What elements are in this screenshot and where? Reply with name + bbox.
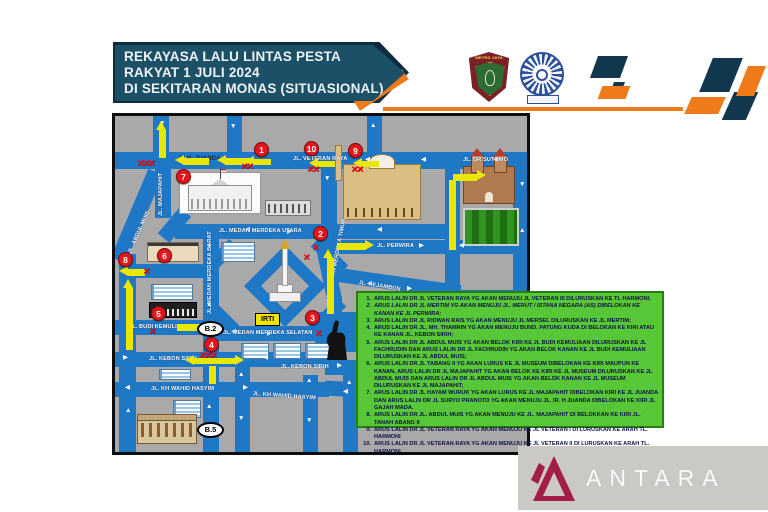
detour-arrow [159,130,166,158]
antara-wordmark: ANTARA [586,465,726,492]
road-arrow-icon [123,355,128,362]
street-label-majapahit: JL. MAJAPAHIT [158,173,164,216]
checkpoint-oval-b2: B.2 [197,321,224,337]
office-building-icon [159,369,191,380]
point-badge-7: 7 [176,169,191,184]
road-arrow-icon [337,363,342,370]
road-segment [227,116,242,152]
legend-item: 8.ARUS LALIN DR JL. ABDUL MUIS YG AKAN M… [361,412,658,427]
point-badge-9: 9 [348,143,363,158]
header-orange-line [383,107,683,111]
monas-obelisk [282,248,288,286]
closure-x-icon [351,164,362,175]
metro-jaya-police-badge-icon: METRO JAYA [468,52,510,102]
street-label-kebon-sirih-east: JL. KEBON SIRIH [281,364,329,370]
legend-item-text: ARUS LALIN DR JL VETERAN RAYA YG AKAN ME… [374,296,658,303]
street-label-wahid-hasyim-west: JL. KH WAHID HASYIM [151,386,214,392]
detour-arrow [209,366,216,384]
legend-item-number: 4. [361,325,371,340]
legend-item: 5.ARUS LALIN DR JL ABDUL MUIS YG AKAN BE… [361,340,658,362]
detour-arrow-head [365,240,374,250]
road-arrow-icon [230,124,236,131]
colonnade-building-icon [265,200,311,216]
legend-item: 7.ARUS LALIN DR JL HAYAM WURUK YG AKAN L… [361,390,658,412]
legend-item-number: 1. [361,296,371,303]
palace-facade [188,185,252,211]
road-segment [175,224,445,239]
deco-orange-shape [598,86,631,99]
legend-item-number: 9. [361,427,371,442]
road-arrow-icon [238,416,244,423]
legend-item: 2.ARUS LALIN DR JL MERTIM YG AKAN MENUJU… [361,303,658,318]
closure-x-icon [137,158,154,169]
legend-item: 6.ARUS LALIN DR JL TABANG II YG AKAN LUR… [361,361,658,390]
legend-item-text: ARUS LALIN DR JL TABANG II YG AKAN LURUS… [374,361,658,390]
legend-item-number: 7. [361,390,371,412]
road-arrow-icon [370,123,376,130]
legend-item: 4.ARUS LALIN DR JL. MH. THAMRIN YG AKAN … [361,325,658,340]
street-label-dr-sutomo: JL. DR SUTOMO [463,157,508,163]
irti-label: IRTI [255,313,280,326]
title-line-2: RAKYAT 1 JULI 2024 [124,65,405,81]
road-arrow-icon [346,380,352,387]
monas-flame-icon [280,239,290,249]
deco-navy-shape [590,56,628,78]
legend-item: 1.ARUS LALIN DR JL VETERAN RAYA YG AKAN … [361,296,658,303]
theater-building-icon [147,242,199,262]
detour-arrow [361,161,379,167]
point-badge-6: 6 [157,248,172,263]
point-badge-3: 3 [305,310,320,325]
detour-arrow [253,159,271,165]
legend-item-number: 2. [361,303,371,318]
closure-x-icon [143,266,149,277]
road-arrow-icon [125,408,131,415]
road-arrow-icon [238,372,244,379]
point-badge-8: 8 [118,252,133,267]
closure-x-icon [149,326,155,337]
legend-item-text: ARUS LALIN DR JL MERTIM YG AKAN MENUJU J… [374,303,658,318]
badge-hub [536,69,548,81]
office-building-icon [151,284,193,300]
checkpoint-oval-b5: B.5 [197,422,224,438]
detour-arrow-head [123,279,133,288]
legend-item-number: 3. [361,318,371,325]
patung-kuda-statue-icon [321,314,351,360]
detour-arrow-head [477,170,486,180]
istana-merdeka-icon [179,172,261,214]
closure-x-icon [303,252,309,263]
point-badge-2: 2 [313,226,328,241]
road-arrow-icon [263,355,268,362]
corner-navy-shape [699,58,743,92]
legend-item-number: 5. [361,340,371,362]
road-arrow-icon [519,228,525,235]
point-badge-4: 4 [204,337,219,352]
title-line-3: DI SEKITARAN MONAS (SITUASIONAL) [124,81,405,97]
road-arrow-icon [324,176,330,183]
detour-arrow [126,288,133,350]
detour-arrow [453,174,477,181]
shield-symbol [485,70,495,86]
corner-orange-shape [736,66,766,96]
street-label-merdeka-utara: JL. MEDAN MERDEKA UTARA [219,228,302,234]
antara-logo-icon [530,453,576,503]
title-line-1: REKAYASA LALU LINTAS PESTA [124,49,405,65]
traffic-diversion-legend: 1.ARUS LALIN DR JL VETERAN RAYA YG AKAN … [356,291,664,428]
museum-nasional-icon [137,414,197,444]
line-end-orange-shape [684,97,726,114]
legend-item-number: 6. [361,361,371,390]
closure-x-icon [307,164,318,175]
detour-arrow [449,180,456,250]
mosque-minaret [335,145,342,181]
point-badge-5: 5 [151,306,166,321]
monas-monument-icon [269,292,301,302]
detour-arrow-head [156,121,166,130]
detour-arrow [337,243,365,250]
office-building-icon [273,343,301,359]
road-arrow-icon [206,404,212,411]
road-segment [303,375,318,452]
traffic-police-badge-icon [517,50,567,104]
detour-arrow-head [323,249,333,258]
lapangan-banteng-field-icon [463,208,519,246]
road-segment [235,367,250,452]
flag-icon [220,169,221,179]
road-arrow-icon [306,378,312,385]
road-arrow-icon [419,243,424,250]
badge-ribbon [527,95,559,104]
legend-item-text: ARUS LALIN DR JL. ABDUL MUIS YG AKAN MEN… [374,412,658,427]
point-badge-1: 1 [254,142,269,157]
road-arrow-icon [377,227,382,234]
legend-item-text: ARUS LALIN DR JL VETERAN RAYA YG AKAN ME… [374,427,658,442]
closure-x-icon [241,161,252,172]
street-label-merdeka-selatan: JL. MEDAN MERDEKA SELATAN [223,330,312,336]
road-arrow-icon [421,157,426,164]
legend-item: 3.ARUS LALIN DR JL RIDWAN RAIS YG AKAN M… [361,318,658,325]
legend-item-text: ARUS LALIN DR JL RIDWAN RAIS YG AKAN MEN… [374,318,658,325]
legend-item-text: ARUS LALIN DR JL. MH. THAMRIN YG AKAN ME… [374,325,658,340]
closure-x-icon [312,242,318,253]
title-banner: REKAYASA LALU LINTAS PESTA RAKYAT 1 JULI… [115,45,405,101]
detour-arrow-head [235,355,244,365]
detour-arrow [317,161,335,167]
antara-watermark: ANTARA [518,446,768,510]
road-arrow-icon [125,385,130,392]
road-arrow-icon [519,182,525,189]
detour-arrow [183,158,209,165]
street-label-perwira: JL. PERWIRA [377,243,414,249]
office-building-icon [221,242,255,262]
legend-item-number: 10. [361,441,371,456]
point-badge-10: 10 [304,141,319,156]
road-arrow-icon [243,385,248,392]
road-arrow-icon [459,243,464,250]
legend-item-number: 8. [361,412,371,427]
metro-jaya-label: METRO JAYA [468,55,510,60]
legend-item-text: ARUS LALIN DR JL ABDUL MUIS YG AKAN BELO… [374,340,658,362]
legend-item: 9.ARUS LALIN DR JL VETERAN RAYA YG AKAN … [361,427,658,442]
legend-item-text: ARUS LALIN DR JL HAYAM WURUK YG AKAN LUR… [374,390,658,412]
closure-x-icon [315,328,321,339]
cathedral-icon [463,166,515,204]
detour-arrow [327,258,334,314]
road-arrow-icon [306,418,312,425]
road-arrow-icon [343,389,348,396]
line-end-navy-shape [722,92,758,120]
street-label-merdeka-barat: JL. MEDAN MERDEKA BARAT [207,231,213,314]
